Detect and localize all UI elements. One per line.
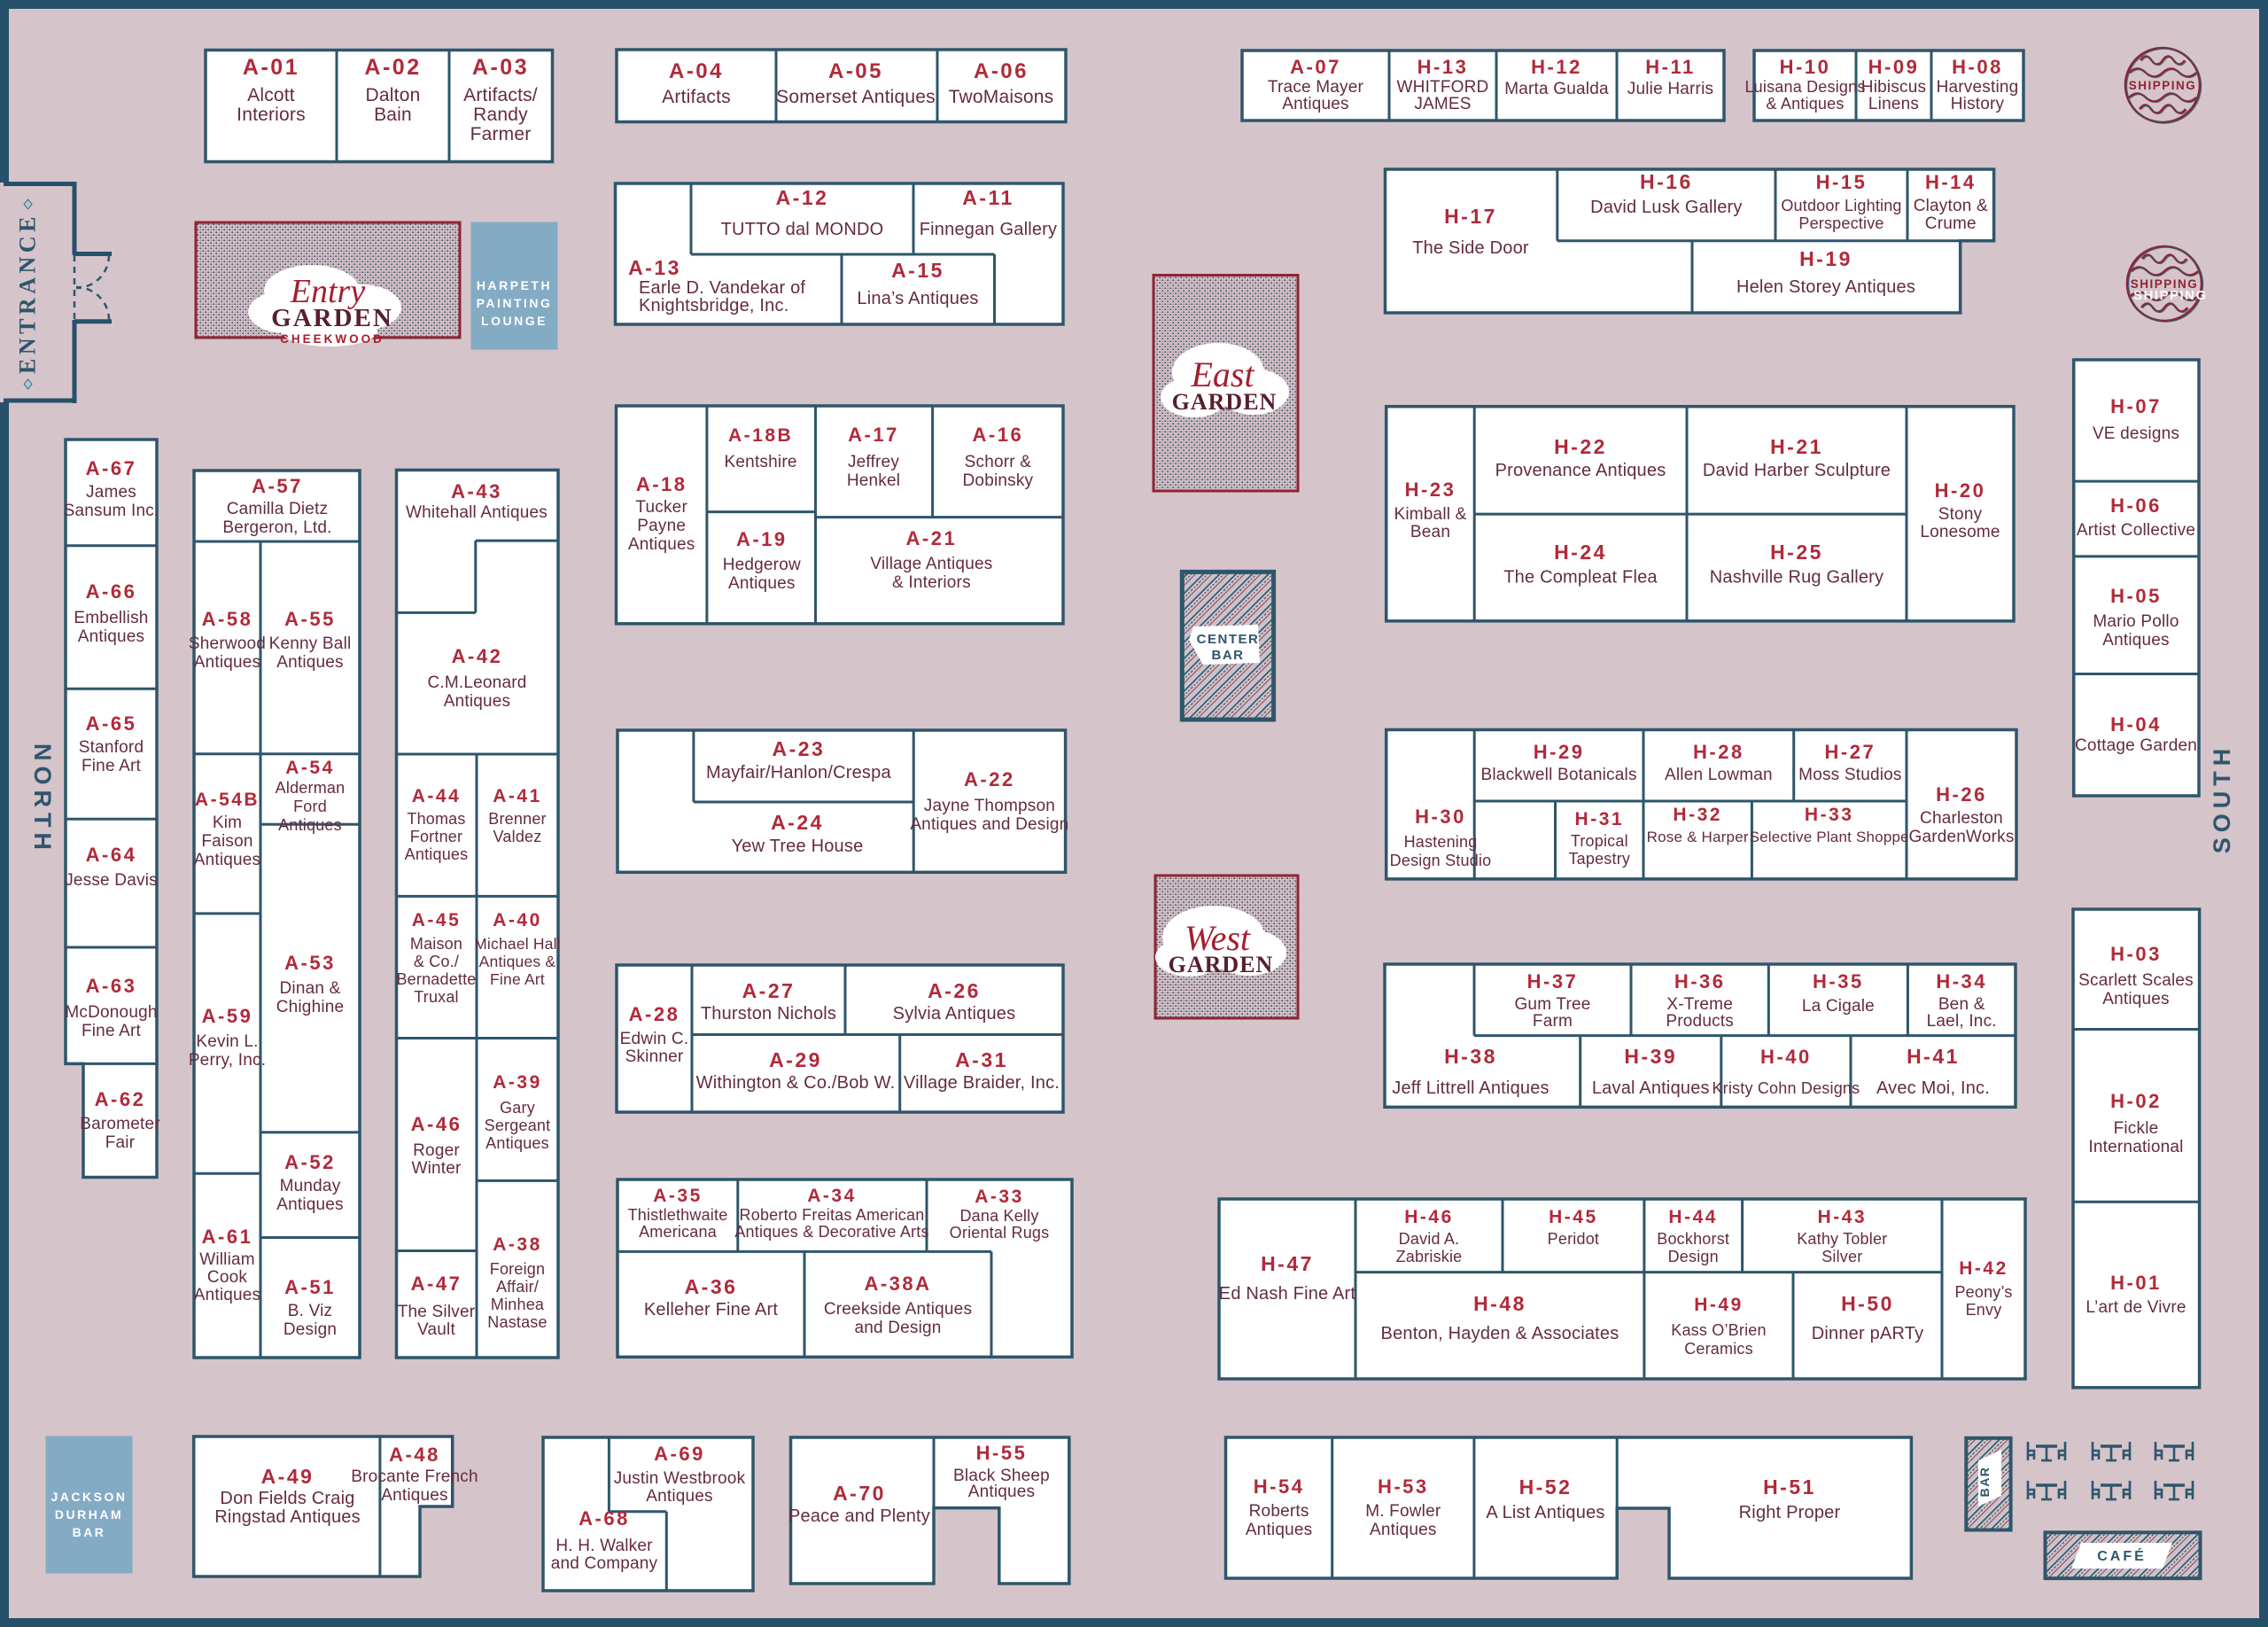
svg-text:H-41: H-41 bbox=[1907, 1045, 1960, 1068]
svg-text:A-66: A-66 bbox=[86, 580, 137, 603]
svg-text:A-35: A-35 bbox=[653, 1186, 703, 1206]
svg-text:& Co./: & Co./ bbox=[414, 953, 459, 970]
svg-text:William: William bbox=[199, 1250, 255, 1269]
svg-text:Minhea: Minhea bbox=[491, 1296, 545, 1313]
svg-text:Antiques and Design: Antiques and Design bbox=[910, 815, 1068, 834]
svg-text:H-25: H-25 bbox=[1770, 541, 1823, 564]
svg-text:Edwin C.: Edwin C. bbox=[620, 1030, 689, 1048]
svg-text:H-09: H-09 bbox=[1868, 56, 1920, 78]
svg-text:Barometer: Barometer bbox=[80, 1115, 160, 1133]
svg-text:A-53: A-53 bbox=[284, 952, 336, 974]
svg-text:BAR: BAR bbox=[1212, 648, 1245, 663]
svg-text:Antiques: Antiques bbox=[1246, 1521, 1313, 1539]
svg-text:A-15: A-15 bbox=[891, 259, 944, 282]
svg-text:Perspective: Perspective bbox=[1798, 214, 1884, 232]
svg-text:Hastening: Hastening bbox=[1404, 833, 1478, 851]
svg-text:H-16: H-16 bbox=[1640, 170, 1693, 193]
svg-text:Fine Art: Fine Art bbox=[82, 757, 142, 775]
svg-text:A-48: A-48 bbox=[389, 1444, 440, 1466]
svg-text:Tropical: Tropical bbox=[1571, 832, 1628, 850]
svg-text:H-47: H-47 bbox=[1261, 1252, 1314, 1275]
svg-text:Sylvia Antiques: Sylvia Antiques bbox=[893, 1004, 1016, 1024]
svg-text:GARDEN: GARDEN bbox=[1172, 389, 1278, 415]
svg-text:DURHAM: DURHAM bbox=[55, 1507, 123, 1522]
svg-text:H-33: H-33 bbox=[1805, 805, 1854, 825]
svg-text:TUTTO dal MONDO: TUTTO dal MONDO bbox=[721, 220, 884, 239]
svg-text:A-34: A-34 bbox=[807, 1186, 857, 1206]
svg-text:Stanford: Stanford bbox=[79, 738, 144, 757]
svg-text:and Design: and Design bbox=[854, 1319, 941, 1337]
svg-text:Jeff Littrell Antiques: Jeff Littrell Antiques bbox=[1392, 1078, 1549, 1098]
svg-text:Yew Tree House: Yew Tree House bbox=[732, 837, 864, 856]
svg-text:H-40: H-40 bbox=[1760, 1046, 1812, 1068]
svg-text:H-55: H-55 bbox=[976, 1442, 1028, 1464]
svg-text:Silver: Silver bbox=[1821, 1248, 1862, 1265]
svg-text:Antiques: Antiques bbox=[1282, 95, 1349, 113]
svg-text:H-35: H-35 bbox=[1813, 970, 1864, 993]
svg-text:Harvesting: Harvesting bbox=[1937, 78, 2019, 97]
svg-text:Antiques: Antiques bbox=[194, 851, 261, 869]
svg-text:Allen Lowman: Allen Lowman bbox=[1665, 766, 1773, 784]
svg-text:Interiors: Interiors bbox=[237, 105, 306, 125]
svg-text:A-58: A-58 bbox=[202, 608, 253, 630]
svg-text:Affair/: Affair/ bbox=[496, 1278, 539, 1296]
svg-text:Michael Hall: Michael Hall bbox=[474, 935, 561, 953]
svg-text:Peace and Plenty: Peace and Plenty bbox=[788, 1506, 930, 1526]
svg-text:Ceramics: Ceramics bbox=[1684, 1340, 1753, 1358]
svg-text:Design Studio: Design Studio bbox=[1390, 852, 1492, 869]
svg-text:& Antiques: & Antiques bbox=[1766, 95, 1844, 113]
svg-text:H-10: H-10 bbox=[1780, 56, 1831, 78]
svg-text:SOUTH: SOUTH bbox=[2209, 743, 2235, 854]
svg-text:A-12: A-12 bbox=[776, 186, 829, 209]
svg-text:A-19: A-19 bbox=[736, 528, 788, 550]
svg-text:CENTER: CENTER bbox=[1197, 632, 1260, 647]
svg-text:Gum Tree: Gum Tree bbox=[1514, 995, 1590, 1014]
svg-text:Roger: Roger bbox=[413, 1141, 460, 1160]
svg-text:H-46: H-46 bbox=[1404, 1207, 1454, 1227]
svg-text:Tapestry: Tapestry bbox=[1568, 850, 1630, 868]
svg-text:A-07: A-07 bbox=[1290, 56, 1341, 78]
svg-text:David Lusk Gallery: David Lusk Gallery bbox=[1590, 198, 1742, 217]
svg-text:Nastase: Nastase bbox=[487, 1313, 547, 1331]
svg-text:H-04: H-04 bbox=[2110, 713, 2162, 736]
svg-text:A-24: A-24 bbox=[771, 811, 824, 834]
svg-text:Fine Art: Fine Art bbox=[490, 970, 545, 988]
svg-text:SHIPPING: SHIPPING bbox=[2131, 277, 2199, 291]
svg-text:Perry, Inc.: Perry, Inc. bbox=[189, 1051, 266, 1070]
svg-text:Antiques: Antiques bbox=[2102, 631, 2170, 650]
svg-text:Village Braider, Inc.: Village Braider, Inc. bbox=[904, 1073, 1060, 1093]
svg-text:A-22: A-22 bbox=[964, 768, 1015, 790]
svg-text:H-44: H-44 bbox=[1668, 1207, 1718, 1227]
svg-text:Sansum Inc.: Sansum Inc. bbox=[64, 502, 159, 520]
svg-text:Alderman: Alderman bbox=[276, 779, 346, 797]
svg-text:David Harber Sculpture: David Harber Sculpture bbox=[1703, 461, 1891, 480]
svg-text:SHIPPING: SHIPPING bbox=[2129, 79, 2197, 92]
svg-text:HARPETH: HARPETH bbox=[477, 278, 552, 292]
svg-text:H-43: H-43 bbox=[1818, 1207, 1868, 1227]
svg-text:H-51: H-51 bbox=[1763, 1475, 1816, 1499]
svg-text:H-12: H-12 bbox=[1531, 56, 1582, 78]
svg-text:Embellish: Embellish bbox=[74, 609, 148, 627]
svg-text:Gary: Gary bbox=[500, 1099, 535, 1117]
svg-text:Kathy Tobler: Kathy Tobler bbox=[1797, 1230, 1887, 1248]
svg-text:Sergeant: Sergeant bbox=[485, 1117, 551, 1134]
svg-text:Helen Storey Antiques: Helen Storey Antiques bbox=[1736, 277, 1915, 297]
svg-text:A-13: A-13 bbox=[628, 256, 681, 279]
svg-text:Mario Pollo: Mario Pollo bbox=[2093, 612, 2179, 631]
svg-text:Rose & Harper: Rose & Harper bbox=[1647, 829, 1749, 845]
svg-text:Antiques: Antiques bbox=[628, 535, 695, 554]
svg-text:Don Fields Craig: Don Fields Craig bbox=[220, 1489, 354, 1508]
svg-text:A-29: A-29 bbox=[769, 1048, 822, 1071]
svg-text:Marta Gualda: Marta Gualda bbox=[1504, 80, 1609, 98]
svg-text:H-49: H-49 bbox=[1694, 1295, 1744, 1315]
svg-text:Antiques: Antiques bbox=[78, 627, 145, 646]
svg-text:Thistlethwaite: Thistlethwaite bbox=[628, 1206, 728, 1224]
svg-text:The Silver: The Silver bbox=[398, 1303, 476, 1321]
svg-text:A-67: A-67 bbox=[86, 457, 137, 479]
svg-text:Alcott: Alcott bbox=[247, 85, 295, 105]
svg-text:Outdoor Lighting: Outdoor Lighting bbox=[1781, 197, 1901, 214]
svg-text:Foreign: Foreign bbox=[490, 1260, 545, 1278]
svg-text:H-17: H-17 bbox=[1444, 205, 1497, 228]
svg-text:A-55: A-55 bbox=[284, 608, 336, 630]
svg-text:GardenWorks: GardenWorks bbox=[1908, 828, 2014, 846]
svg-text:H. H. Walker: H. H. Walker bbox=[555, 1537, 653, 1555]
svg-text:Jayne Thompson: Jayne Thompson bbox=[924, 797, 1055, 815]
svg-text:Skinner: Skinner bbox=[625, 1047, 684, 1066]
svg-text:Fair: Fair bbox=[105, 1133, 136, 1152]
svg-text:A-38A: A-38A bbox=[864, 1273, 931, 1295]
svg-text:Thomas: Thomas bbox=[407, 810, 465, 828]
svg-text:Envy: Envy bbox=[1966, 1301, 2002, 1319]
svg-text:H-36: H-36 bbox=[1674, 970, 1726, 993]
svg-text:H-07: H-07 bbox=[2110, 395, 2162, 417]
svg-text:H-50: H-50 bbox=[1841, 1292, 1894, 1315]
svg-text:CAFÉ: CAFÉ bbox=[2097, 1547, 2147, 1564]
svg-text:H-54: H-54 bbox=[1254, 1475, 1305, 1498]
svg-text:Chighine: Chighine bbox=[276, 998, 345, 1016]
svg-text:Fine Art: Fine Art bbox=[82, 1022, 142, 1040]
svg-text:Blackwell Botanicals: Blackwell Botanicals bbox=[1481, 766, 1637, 784]
svg-text:& Interiors: & Interiors bbox=[892, 573, 971, 592]
svg-text:A-17: A-17 bbox=[848, 424, 899, 446]
svg-text:M. Fowler: M. Fowler bbox=[1365, 1502, 1441, 1521]
svg-text:Antiques: Antiques bbox=[405, 845, 469, 863]
svg-text:Ford: Ford bbox=[293, 798, 327, 815]
svg-text:Thurston Nichols: Thurston Nichols bbox=[701, 1004, 836, 1024]
svg-text:Kim: Kim bbox=[213, 813, 242, 832]
svg-text:H-37: H-37 bbox=[1527, 970, 1579, 993]
svg-text:A-21: A-21 bbox=[906, 527, 958, 549]
svg-text:Ringstad Antiques: Ringstad Antiques bbox=[214, 1507, 361, 1527]
svg-text:Antiques: Antiques bbox=[2102, 990, 2170, 1008]
svg-text:H-45: H-45 bbox=[1549, 1207, 1598, 1227]
svg-text:Antiques: Antiques bbox=[646, 1487, 713, 1506]
svg-text:Dobinsky: Dobinsky bbox=[963, 471, 1034, 490]
svg-text:Dinan &: Dinan & bbox=[280, 979, 341, 998]
svg-text:Design: Design bbox=[1668, 1248, 1719, 1265]
svg-text:BAR: BAR bbox=[73, 1525, 106, 1539]
svg-text:A-28: A-28 bbox=[629, 1003, 680, 1025]
svg-text:Cottage Garden: Cottage Garden bbox=[2075, 736, 2197, 755]
svg-text:Antiques: Antiques bbox=[485, 1134, 549, 1152]
svg-text:Valdez: Valdez bbox=[493, 828, 542, 845]
svg-text:A-63: A-63 bbox=[86, 975, 137, 997]
svg-text:A-49: A-49 bbox=[261, 1465, 315, 1488]
svg-text:Farmer: Farmer bbox=[470, 124, 532, 144]
svg-text:A-27: A-27 bbox=[742, 979, 796, 1002]
svg-text:Luisana Designs: Luisana Designs bbox=[1744, 78, 1865, 96]
svg-text:H-52: H-52 bbox=[1519, 1475, 1573, 1499]
svg-text:Bockhorst: Bockhorst bbox=[1657, 1230, 1729, 1248]
svg-text:H-31: H-31 bbox=[1575, 809, 1625, 829]
svg-text:C.M.Leonard: C.M.Leonard bbox=[427, 673, 526, 692]
svg-text:A-41: A-41 bbox=[493, 786, 542, 806]
svg-text:Randy: Randy bbox=[473, 105, 528, 125]
svg-text:X-Treme: X-Treme bbox=[1666, 995, 1733, 1014]
svg-text:Kenny Ball: Kenny Ball bbox=[269, 634, 352, 653]
svg-text:Sherwood: Sherwood bbox=[189, 634, 266, 653]
svg-text:L’art de Vivre: L’art de Vivre bbox=[2085, 1298, 2186, 1317]
svg-text:CHEEKWOOD: CHEEKWOOD bbox=[280, 332, 384, 346]
svg-text:H-22: H-22 bbox=[1554, 435, 1607, 458]
svg-text:Lael, Inc.: Lael, Inc. bbox=[1927, 1012, 1997, 1031]
svg-text:Somerset Antiques: Somerset Antiques bbox=[776, 87, 936, 107]
svg-text:NORTH: NORTH bbox=[29, 743, 56, 855]
svg-text:Dana Kelly: Dana Kelly bbox=[959, 1207, 1038, 1225]
svg-text:Winter: Winter bbox=[411, 1159, 462, 1178]
svg-text:A-05: A-05 bbox=[828, 59, 883, 83]
svg-text:Kentshire: Kentshire bbox=[725, 453, 797, 471]
svg-text:Peony’s: Peony’s bbox=[1954, 1283, 2012, 1301]
svg-text:A-02: A-02 bbox=[364, 55, 421, 80]
svg-text:GARDEN: GARDEN bbox=[271, 304, 393, 332]
svg-text:PAINTING: PAINTING bbox=[477, 296, 553, 310]
svg-text:A-03: A-03 bbox=[472, 55, 529, 80]
svg-text:Linens: Linens bbox=[1868, 95, 1919, 113]
svg-text:Mayfair/Hanlon/Crespa: Mayfair/Hanlon/Crespa bbox=[706, 763, 891, 782]
svg-text:Selective Plant Shoppe: Selective Plant Shoppe bbox=[1750, 829, 1909, 845]
svg-text:A-16: A-16 bbox=[973, 424, 1024, 446]
svg-text:Antiques: Antiques bbox=[276, 1195, 344, 1214]
svg-text:Vault: Vault bbox=[417, 1320, 455, 1339]
svg-text:History: History bbox=[1951, 95, 2005, 113]
svg-text:H-13: H-13 bbox=[1417, 56, 1469, 78]
svg-text:Design: Design bbox=[283, 1320, 337, 1339]
svg-text:Ben &: Ben & bbox=[1938, 995, 1985, 1014]
svg-text:Antiques & Decorative Arts: Antiques & Decorative Arts bbox=[734, 1223, 928, 1241]
svg-text:A-46: A-46 bbox=[411, 1113, 462, 1135]
svg-text:and Company: and Company bbox=[551, 1554, 658, 1573]
svg-text:Antiques: Antiques bbox=[968, 1483, 1036, 1501]
svg-text:H-05: H-05 bbox=[2110, 585, 2162, 607]
svg-text:H-06: H-06 bbox=[2110, 494, 2162, 517]
svg-text:The Compleat Flea: The Compleat Flea bbox=[1503, 568, 1658, 588]
svg-text:A-70: A-70 bbox=[833, 1482, 886, 1505]
svg-text:A-62: A-62 bbox=[95, 1088, 146, 1110]
svg-text:Farm: Farm bbox=[1533, 1012, 1573, 1031]
svg-text:Faison: Faison bbox=[201, 832, 252, 851]
svg-text:JAMES: JAMES bbox=[1414, 95, 1471, 113]
svg-text:Oriental Rugs: Oriental Rugs bbox=[950, 1224, 1050, 1242]
svg-text:Kelleher Fine Art: Kelleher Fine Art bbox=[644, 1300, 778, 1320]
svg-text:Henkel: Henkel bbox=[847, 471, 900, 490]
svg-text:Truxal: Truxal bbox=[414, 988, 459, 1006]
svg-text:H-08: H-08 bbox=[1952, 56, 2003, 78]
svg-text:A-54: A-54 bbox=[285, 758, 335, 778]
svg-text:Avec Moi, Inc.: Avec Moi, Inc. bbox=[1876, 1078, 1990, 1098]
svg-text:A-69: A-69 bbox=[654, 1443, 705, 1465]
svg-text:A-52: A-52 bbox=[284, 1151, 336, 1173]
svg-text:Knightsbridge, Inc.: Knightsbridge, Inc. bbox=[639, 296, 788, 315]
svg-text:H-23: H-23 bbox=[1405, 479, 1456, 501]
svg-text:Artifacts/: Artifacts/ bbox=[463, 85, 538, 105]
svg-text:McDonough: McDonough bbox=[65, 1003, 157, 1022]
svg-text:H-03: H-03 bbox=[2110, 943, 2162, 965]
svg-text:A-18: A-18 bbox=[636, 473, 687, 495]
svg-text:A-23: A-23 bbox=[772, 737, 825, 760]
svg-text:Julie Harris: Julie Harris bbox=[1627, 80, 1713, 98]
svg-text:H-48: H-48 bbox=[1473, 1292, 1526, 1315]
svg-text:A-68: A-68 bbox=[579, 1507, 630, 1530]
svg-text:Justin Westbrook: Justin Westbrook bbox=[614, 1469, 746, 1488]
svg-text:Cook: Cook bbox=[207, 1268, 247, 1287]
svg-text:H-34: H-34 bbox=[1936, 970, 1987, 993]
svg-text:Peridot: Peridot bbox=[1548, 1230, 1599, 1248]
svg-text:Provenance Antiques: Provenance Antiques bbox=[1495, 461, 1666, 480]
svg-text:WHITFORD: WHITFORD bbox=[1397, 78, 1489, 97]
svg-text:Artist Collective: Artist Collective bbox=[2077, 521, 2195, 540]
svg-text:Maison: Maison bbox=[410, 935, 462, 953]
svg-text:La Cigale: La Cigale bbox=[1802, 997, 1875, 1016]
svg-text:Trace Mayer: Trace Mayer bbox=[1268, 78, 1364, 97]
svg-text:A-26: A-26 bbox=[928, 979, 981, 1002]
svg-text:Antiques: Antiques bbox=[278, 816, 342, 834]
svg-text:A-51: A-51 bbox=[284, 1276, 336, 1298]
svg-text:Antiques &: Antiques & bbox=[479, 953, 556, 970]
svg-text:Kristy Cohn Designs: Kristy Cohn Designs bbox=[1712, 1079, 1860, 1097]
svg-text:H-29: H-29 bbox=[1534, 741, 1585, 763]
svg-text:A-57: A-57 bbox=[252, 475, 303, 497]
svg-text:Antiques: Antiques bbox=[194, 653, 261, 672]
svg-text:Ed Nash Fine Art: Ed Nash Fine Art bbox=[1219, 1284, 1356, 1304]
svg-text:A-06: A-06 bbox=[974, 59, 1029, 83]
svg-text:H-11: H-11 bbox=[1645, 56, 1695, 78]
svg-text:H-19: H-19 bbox=[1799, 247, 1852, 270]
svg-text:A-04: A-04 bbox=[669, 59, 724, 83]
svg-text:A-11: A-11 bbox=[962, 186, 1014, 209]
svg-text:B. Viz: B. Viz bbox=[288, 1302, 332, 1320]
svg-text:Zabriskie: Zabriskie bbox=[1396, 1248, 1463, 1265]
svg-text:David A.: David A. bbox=[1399, 1230, 1460, 1248]
svg-text:Tucker: Tucker bbox=[635, 498, 687, 517]
svg-text:A-54B: A-54B bbox=[195, 790, 260, 810]
svg-text:BAR: BAR bbox=[1977, 1467, 1992, 1498]
svg-text:A-42: A-42 bbox=[452, 645, 503, 667]
svg-text:A-31: A-31 bbox=[955, 1048, 1008, 1071]
svg-text:Jesse Davis: Jesse Davis bbox=[65, 871, 158, 890]
svg-text:Brocante French: Brocante French bbox=[351, 1467, 478, 1486]
svg-text:Clayton &: Clayton & bbox=[1914, 197, 1988, 215]
svg-text:Jeffrey: Jeffrey bbox=[848, 453, 899, 471]
svg-text:VE designs: VE designs bbox=[2093, 424, 2179, 443]
svg-text:H-15: H-15 bbox=[1816, 171, 1868, 193]
svg-text:Antiques: Antiques bbox=[276, 653, 344, 672]
svg-text:A-36: A-36 bbox=[685, 1275, 738, 1298]
svg-text:Bain: Bain bbox=[374, 105, 412, 125]
svg-text:H-32: H-32 bbox=[1673, 805, 1722, 825]
svg-text:A-38: A-38 bbox=[493, 1234, 542, 1255]
svg-text:Moss Studios: Moss Studios bbox=[1798, 766, 1901, 784]
svg-text:H-14: H-14 bbox=[1925, 171, 1977, 193]
svg-text:A-65: A-65 bbox=[86, 712, 137, 735]
svg-text:Americana: Americana bbox=[639, 1223, 718, 1241]
svg-text:Roberto Freitas American: Roberto Freitas American bbox=[740, 1206, 925, 1224]
svg-text:A-40: A-40 bbox=[493, 910, 542, 930]
svg-text:Payne: Payne bbox=[637, 517, 686, 535]
svg-text:Dalton: Dalton bbox=[366, 85, 421, 105]
svg-text:Stony: Stony bbox=[1938, 505, 1983, 524]
svg-text:Lonesome: Lonesome bbox=[1920, 523, 2000, 541]
svg-text:H-30: H-30 bbox=[1415, 806, 1466, 828]
svg-text:Brenner: Brenner bbox=[488, 810, 546, 828]
svg-text:Bernadette: Bernadette bbox=[396, 970, 476, 988]
svg-text:A-43: A-43 bbox=[451, 480, 502, 502]
svg-text:James: James bbox=[86, 483, 136, 502]
svg-text:A-01: A-01 bbox=[243, 55, 299, 80]
svg-text:A-64: A-64 bbox=[86, 844, 137, 866]
svg-text:Fortner: Fortner bbox=[410, 828, 462, 845]
svg-text:The Side Door: The Side Door bbox=[1412, 238, 1529, 258]
svg-text:A-59: A-59 bbox=[202, 1005, 253, 1027]
svg-text:Antiques: Antiques bbox=[381, 1486, 448, 1505]
svg-text:Earle D. Vandekar of: Earle D. Vandekar of bbox=[639, 278, 805, 298]
svg-text:Scarlett Scales: Scarlett Scales bbox=[2078, 971, 2194, 990]
svg-text:A-33: A-33 bbox=[975, 1187, 1024, 1207]
svg-text:H-42: H-42 bbox=[1959, 1258, 2008, 1279]
svg-text:A-45: A-45 bbox=[412, 910, 462, 930]
svg-text:H-26: H-26 bbox=[1936, 783, 1987, 806]
svg-text:H-24: H-24 bbox=[1554, 541, 1607, 564]
svg-text:H-02: H-02 bbox=[2110, 1090, 2162, 1112]
svg-text:Hedgerow: Hedgerow bbox=[723, 556, 801, 574]
svg-text:Withington & Co./Bob W.: Withington & Co./Bob W. bbox=[696, 1073, 896, 1093]
svg-text:JACKSON: JACKSON bbox=[51, 1490, 128, 1504]
svg-text:Antiques: Antiques bbox=[1370, 1521, 1437, 1539]
svg-text:Finnegan Gallery: Finnegan Gallery bbox=[920, 220, 1058, 239]
svg-text:A-47: A-47 bbox=[411, 1273, 462, 1295]
svg-text:A List Antiques: A List Antiques bbox=[1486, 1503, 1604, 1522]
svg-text:Products: Products bbox=[1666, 1012, 1734, 1031]
svg-text:TwoMaisons: TwoMaisons bbox=[949, 87, 1054, 107]
svg-text:Village Antiques: Village Antiques bbox=[870, 555, 992, 573]
svg-text:Whitehall Antiques: Whitehall Antiques bbox=[406, 503, 548, 522]
svg-text:Antiques: Antiques bbox=[194, 1286, 261, 1304]
svg-text:H-27: H-27 bbox=[1825, 741, 1876, 763]
svg-text:LOUNGE: LOUNGE bbox=[481, 314, 548, 328]
svg-text:A-39: A-39 bbox=[493, 1072, 542, 1093]
svg-text:Dinner pARTy: Dinner pARTy bbox=[1812, 1324, 1924, 1343]
svg-text:Right Proper: Right Proper bbox=[1739, 1503, 1841, 1522]
svg-text:Camilla Dietz: Camilla Dietz bbox=[227, 500, 329, 518]
svg-text:H-21: H-21 bbox=[1770, 435, 1823, 458]
svg-text:International: International bbox=[2088, 1138, 2183, 1156]
svg-text:Munday: Munday bbox=[280, 1177, 341, 1195]
svg-text:GARDEN: GARDEN bbox=[1169, 952, 1274, 977]
